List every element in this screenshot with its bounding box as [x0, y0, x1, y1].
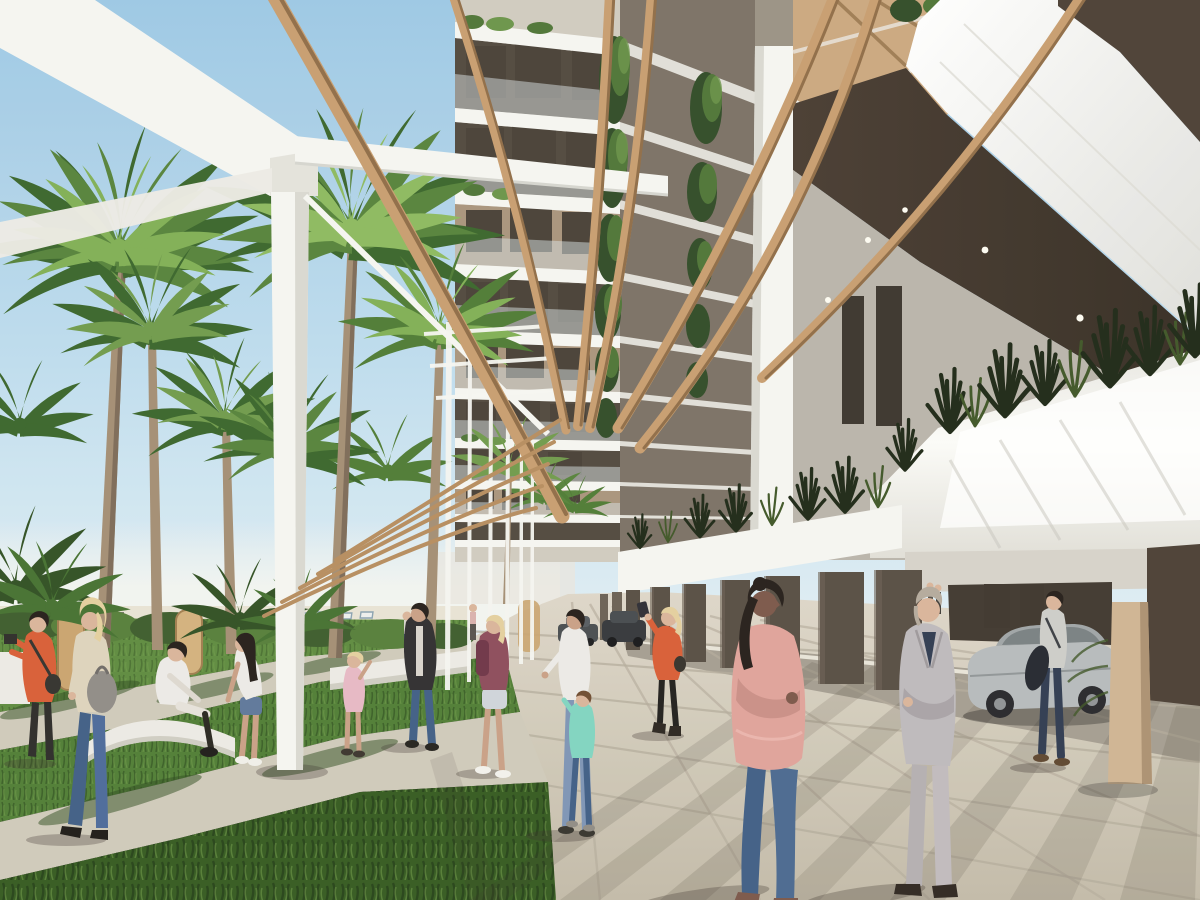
promenade-render: Seafront promenade beside a modern white…: [0, 0, 1200, 900]
rendered-photo: Seafront promenade beside a modern white…: [0, 0, 1200, 900]
light-wash: [0, 0, 1200, 900]
